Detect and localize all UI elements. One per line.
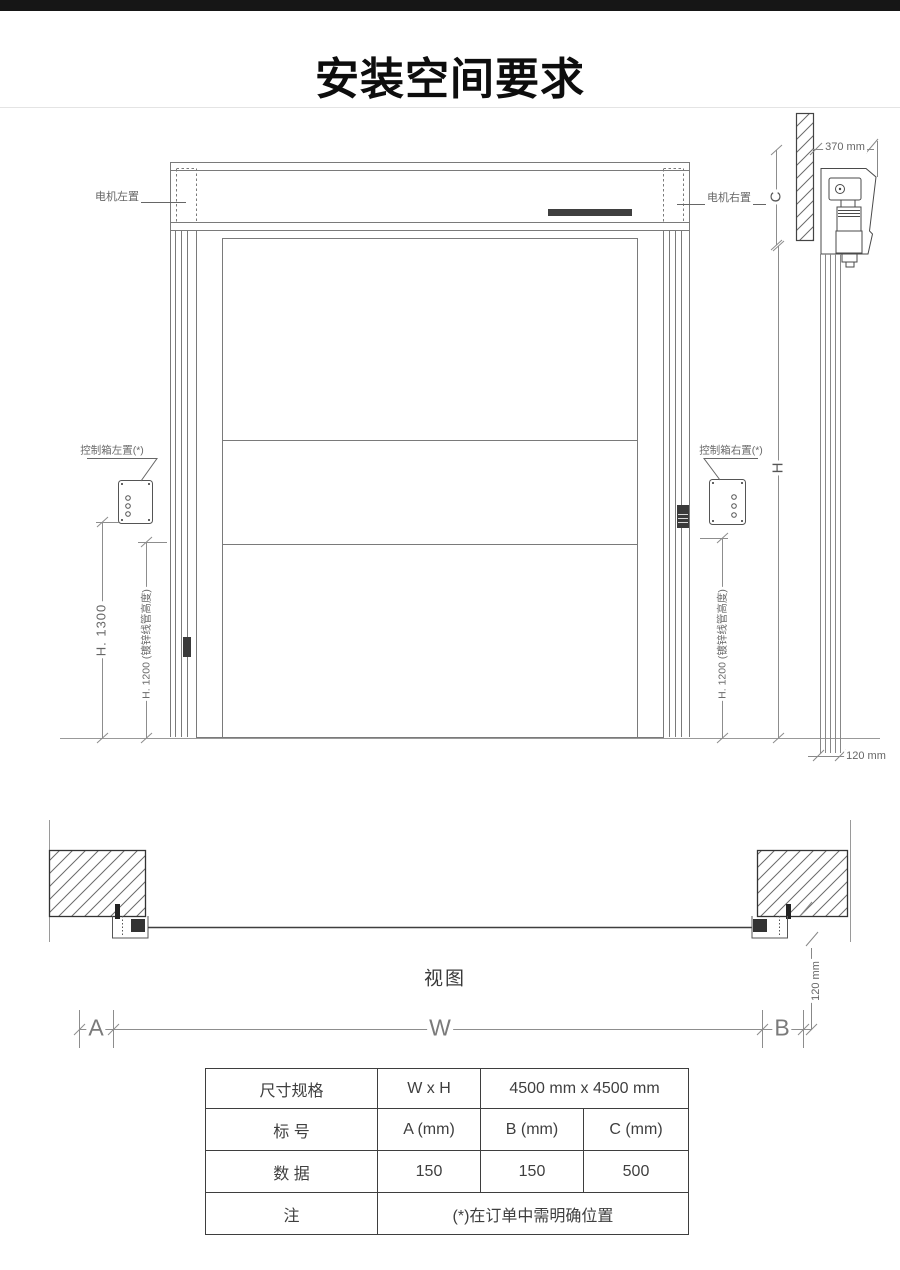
wall-section-left xyxy=(50,851,146,917)
dim-120mm-side-label: 120 mm xyxy=(844,750,888,762)
h1200-left-dimension-label: H. 1200 (镀锌线管高度) xyxy=(139,587,154,701)
spec-label-cell: 尺寸规格 xyxy=(206,1069,378,1109)
control-box-left xyxy=(119,481,153,524)
spec-table: 尺寸规格 W x H 4500 mm x 4500 mm 标 号 A (mm) … xyxy=(205,1068,689,1235)
control-box-right xyxy=(710,480,746,525)
side-view xyxy=(797,114,879,762)
lintel-box xyxy=(171,163,690,231)
motor-right-dashed-box xyxy=(664,169,684,223)
motor-right-label: 电机右置 xyxy=(705,189,753,205)
header-a-cell: A (mm) xyxy=(378,1109,481,1151)
data-a-cell: 150 xyxy=(378,1151,481,1193)
right-guide-rail xyxy=(664,230,690,737)
note-value-cell: (*)在订单中需明确位置 xyxy=(378,1193,689,1235)
motor-left-dashed-box xyxy=(177,169,197,223)
motor-assembly xyxy=(821,169,876,268)
shaft-indicator xyxy=(548,209,632,216)
h1300-dimension-label: H. 1300 xyxy=(94,602,109,659)
photocell-left xyxy=(183,637,191,657)
control-left-label: 控制箱左置(*) xyxy=(78,443,146,458)
page: 安装空间要求 xyxy=(0,0,900,1270)
note-label-cell: 注 xyxy=(206,1193,378,1235)
dim-120mm-plan-label: 120 mm xyxy=(810,959,822,1003)
wall-section-right xyxy=(758,851,848,917)
data-c-cell: 500 xyxy=(584,1151,689,1193)
leader-lines xyxy=(87,203,766,482)
elevation-drawing xyxy=(87,163,766,738)
bracket-right xyxy=(752,916,788,938)
control-right-label: 控制箱右置(*) xyxy=(697,443,765,458)
table-row-header: 标 号 A (mm) B (mm) C (mm) xyxy=(206,1109,689,1151)
dim-a-label: A xyxy=(86,1015,105,1042)
spec-key-cell: W x H xyxy=(378,1069,481,1109)
plan-view-label: 视图 xyxy=(422,964,468,991)
bracket-left xyxy=(113,916,149,938)
spec-value-cell: 4500 mm x 4500 mm xyxy=(481,1069,689,1109)
left-guide-rail xyxy=(171,230,197,737)
plan-view xyxy=(50,820,851,1035)
header-label-cell: 标 号 xyxy=(206,1109,378,1151)
dim-w-label: W xyxy=(427,1015,453,1042)
h1200-right-dimension-label: H. 1200 (镀锌线管高度) xyxy=(715,587,730,701)
header-c-cell: C (mm) xyxy=(584,1109,689,1151)
wall-section-top xyxy=(797,114,814,241)
data-label-cell: 数 据 xyxy=(206,1151,378,1193)
table-row-note: 注 (*)在订单中需明确位置 xyxy=(206,1193,689,1235)
h-dimension-label: H xyxy=(770,461,787,476)
dim-b-label: B xyxy=(772,1015,791,1042)
dim-370mm-label: 370 mm xyxy=(823,141,867,153)
data-b-cell: 150 xyxy=(481,1151,584,1193)
motor-left-label: 电机左置 xyxy=(93,188,141,204)
table-row-spec: 尺寸规格 W x H 4500 mm x 4500 mm xyxy=(206,1069,689,1109)
photocell-right xyxy=(677,505,689,528)
c-dimension-label: C xyxy=(768,190,785,205)
side-guide-track xyxy=(821,254,841,753)
door-curtain xyxy=(197,231,664,738)
header-b-cell: B (mm) xyxy=(481,1109,584,1151)
table-row-data: 数 据 150 150 500 xyxy=(206,1151,689,1193)
